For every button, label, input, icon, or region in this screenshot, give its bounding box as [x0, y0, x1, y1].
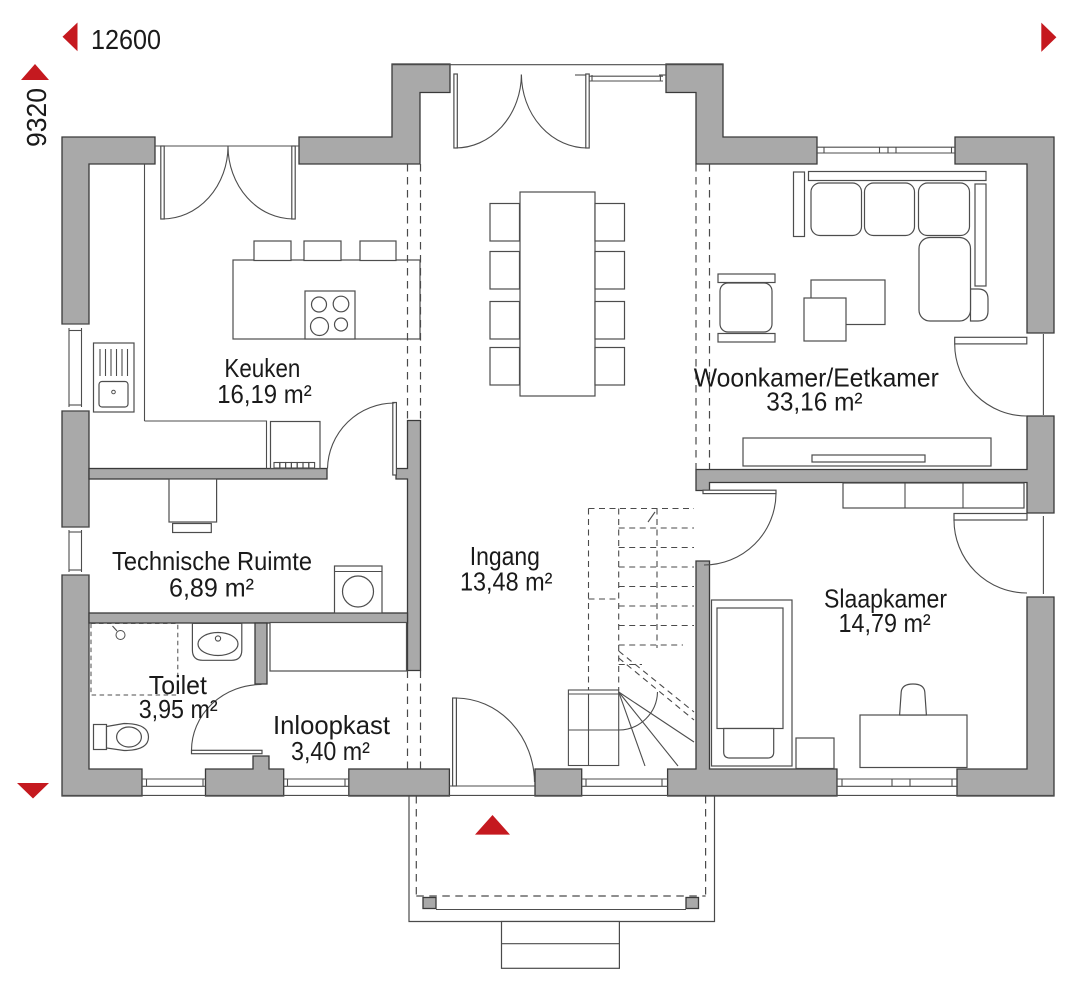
svg-text:Technische Ruimte: Technische Ruimte	[112, 546, 312, 576]
svg-text:16,19 m²: 16,19 m²	[217, 379, 312, 409]
svg-text:13,48 m²: 13,48 m²	[460, 567, 553, 597]
svg-text:9320: 9320	[21, 88, 52, 147]
svg-text:3,40 m²: 3,40 m²	[291, 736, 370, 766]
svg-text:3,95 m²: 3,95 m²	[139, 694, 218, 724]
svg-text:12600: 12600	[91, 24, 161, 55]
svg-text:14,79 m²: 14,79 m²	[839, 608, 932, 638]
svg-text:6,89 m²: 6,89 m²	[169, 573, 254, 603]
svg-text:33,16 m²: 33,16 m²	[766, 387, 863, 417]
